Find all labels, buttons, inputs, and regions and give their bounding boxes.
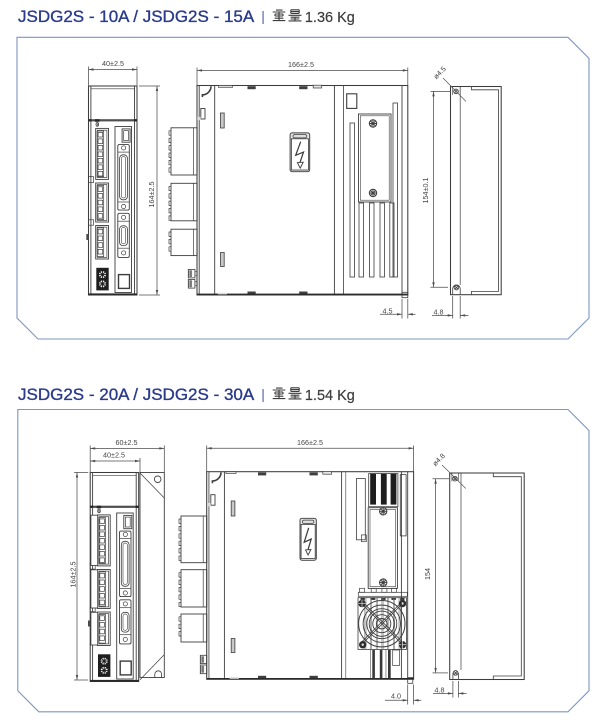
svg-text:40±2.5: 40±2.5 [103, 451, 125, 460]
svg-text:4.8: 4.8 [435, 685, 445, 694]
svg-text:164±2.5: 164±2.5 [147, 182, 156, 208]
svg-text:4.0: 4.0 [391, 692, 401, 701]
svg-text:164±2.5: 164±2.5 [68, 562, 77, 588]
svg-text:ø4.5: ø4.5 [431, 64, 448, 81]
svg-text:166±2.5: 166±2.5 [297, 438, 323, 447]
svg-text:60±2.5: 60±2.5 [116, 438, 138, 447]
svg-text:40±2.5: 40±2.5 [102, 59, 124, 68]
svg-text:4.5: 4.5 [383, 306, 393, 315]
svg-text:4.8: 4.8 [434, 307, 444, 316]
svg-text:166±2.5: 166±2.5 [288, 60, 314, 69]
svg-text:154: 154 [423, 568, 432, 580]
svg-text:154±0.1: 154±0.1 [421, 178, 430, 204]
svg-text:ø4.8: ø4.8 [430, 451, 447, 468]
